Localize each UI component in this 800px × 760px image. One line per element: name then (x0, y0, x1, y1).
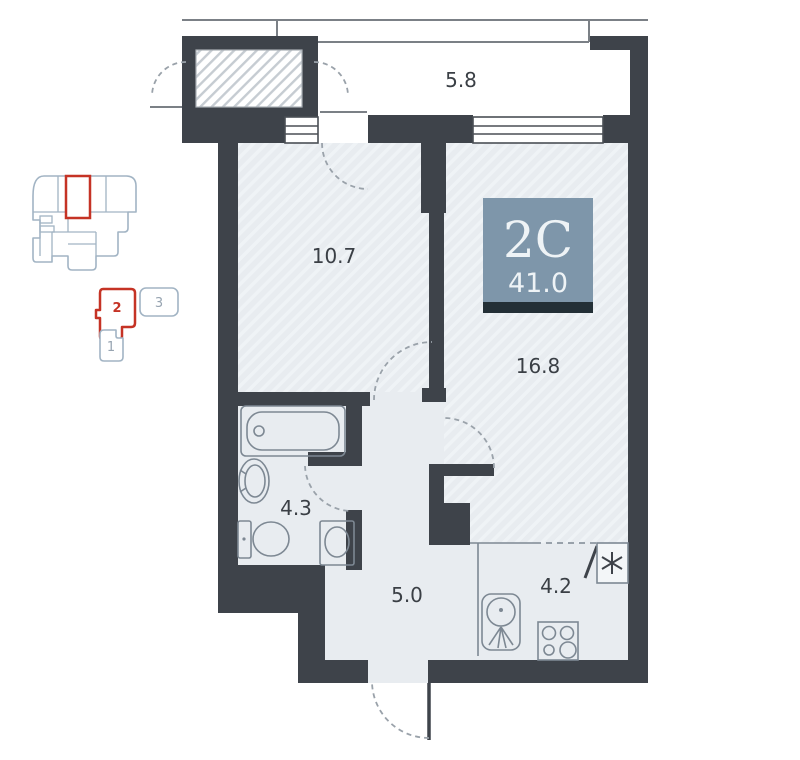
floor-plan-svg: 2С 41.0 5.8 10.7 16.8 4.3 5.0 4.2 2 3 1 (0, 0, 800, 760)
wall-right (628, 115, 648, 683)
minimap-highlighted-unit (66, 176, 90, 218)
unit-type-label: 2С (503, 211, 573, 269)
section-chip-1-label: 1 (107, 340, 115, 355)
shaft-right-arc (314, 62, 348, 96)
unit-area-value: 41.0 (508, 268, 568, 299)
fridge-nook (597, 543, 628, 583)
shaft-hatch (196, 50, 302, 107)
floor-plan-page: 2С 41.0 5.8 10.7 16.8 4.3 5.0 4.2 2 3 1 (0, 0, 800, 760)
wall-between-rooms-top (421, 143, 446, 213)
label-kitchen: 4.2 (540, 574, 572, 598)
section-chip-2-label: 2 (112, 301, 121, 316)
window-small (285, 117, 318, 143)
window-living (473, 117, 603, 143)
section-chip-3[interactable]: 3 (140, 288, 178, 316)
section-selector: 2 3 1 (96, 288, 178, 361)
label-hall: 5.0 (391, 583, 423, 607)
wall-left (218, 143, 238, 613)
label-room: 10.7 (312, 244, 357, 268)
label-balcony: 5.8 (445, 68, 477, 92)
door-arc-entrance (372, 682, 429, 738)
label-living: 16.8 (516, 354, 561, 378)
building-minimap (33, 176, 136, 270)
door-leaf-living (444, 464, 494, 476)
wall-bottom-right (428, 660, 648, 683)
wall-top-right-corner (590, 36, 648, 115)
wall-between-rooms (429, 213, 444, 402)
wall-top-mid (368, 115, 473, 143)
shaft-left-arc (152, 62, 186, 96)
unit-type-badge: 2С 41.0 (483, 198, 593, 313)
wall-bath-bottom (218, 565, 325, 597)
label-bathroom: 4.3 (280, 496, 312, 520)
section-chip-3-label: 3 (155, 296, 163, 311)
wall-kitchen-corner (429, 503, 470, 545)
